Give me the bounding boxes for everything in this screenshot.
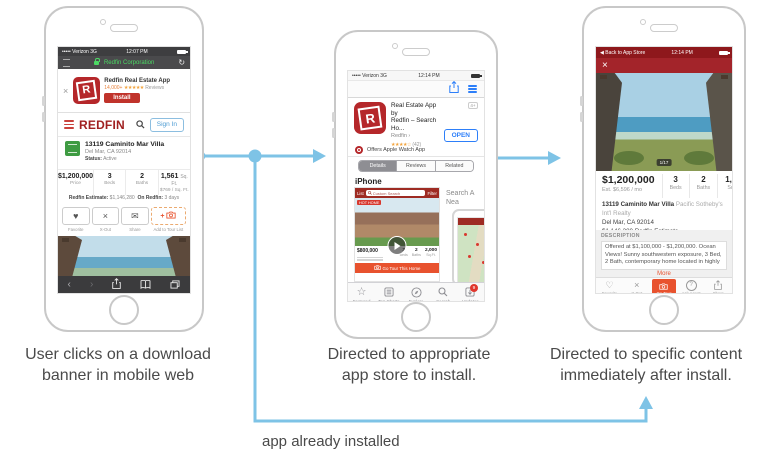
install-button[interactable]: Install bbox=[104, 93, 139, 103]
carrier-label: ••••• Verizon 3G bbox=[352, 73, 387, 79]
listing-city: Del Mar, CA 92014 bbox=[602, 218, 726, 227]
photo-right-wall bbox=[166, 236, 190, 276]
carrier-label: ••••• Verizon 3G bbox=[62, 49, 97, 55]
search-pill: Custom Search bbox=[366, 190, 426, 196]
clock: 12:14 PM bbox=[671, 50, 692, 56]
listing-stats: $1,200,000 Price 3 Beds 2 Baths 1,561 Sq… bbox=[58, 169, 190, 195]
arrow-step1-to-step2 bbox=[197, 149, 327, 163]
description-section: DESCRIPTION Offered at $1,100,000 - $1,2… bbox=[596, 230, 732, 277]
redfin-logo: REDFIN bbox=[79, 118, 125, 132]
listing-thumb-icon bbox=[65, 141, 80, 156]
chimney bbox=[62, 238, 69, 242]
camera-icon bbox=[659, 281, 668, 291]
search-icon[interactable] bbox=[136, 116, 145, 134]
tabs-icon[interactable] bbox=[170, 276, 180, 294]
caption-step-2: Directed to appropriate app store to ins… bbox=[293, 344, 525, 386]
tab-search[interactable]: Search bbox=[430, 283, 457, 302]
xout-button[interactable]: × bbox=[92, 207, 120, 225]
battery-icon bbox=[177, 50, 186, 54]
listing-summary: 13119 Caminito Mar Villa Del Mar, CA 920… bbox=[58, 137, 190, 169]
redfin-app-icon: R bbox=[73, 77, 100, 104]
camera-icon bbox=[374, 265, 381, 271]
share-icon bbox=[714, 280, 722, 290]
stat-beds: 3 Beds bbox=[94, 170, 126, 195]
already-installed-label: app already installed bbox=[262, 433, 400, 450]
front-camera bbox=[640, 19, 646, 25]
favorite-button[interactable]: ♥ bbox=[62, 207, 90, 225]
photo-left-wall bbox=[58, 236, 82, 276]
heart-icon: ♥ bbox=[73, 211, 78, 221]
description-heading: DESCRIPTION bbox=[601, 233, 727, 239]
back-to-app-store-link[interactable]: ◀ Back to App Store bbox=[600, 50, 645, 56]
updates-badge: 9 bbox=[470, 284, 478, 292]
sign-in-button[interactable]: Sign In bbox=[150, 118, 184, 132]
share-button[interactable]: ✉ bbox=[121, 207, 149, 225]
photo-counter-badge: 1/17 bbox=[657, 159, 672, 166]
chimney bbox=[600, 75, 607, 79]
star-rating-icon: ★★★★★ bbox=[124, 85, 144, 91]
bookmarks-icon[interactable] bbox=[140, 276, 151, 294]
screenshot-gallery: List Custom Search Filter HOT HOME $8 bbox=[348, 187, 484, 282]
app-title: Real Estate App by Redfin – Search Ho... bbox=[391, 102, 439, 132]
volume-button bbox=[42, 112, 45, 122]
app-card: R Real Estate App by Redfin – Search Ho.… bbox=[348, 98, 484, 144]
estimate-line: Redfin Estimate: $1,146,280 On Redfin: 3… bbox=[58, 195, 190, 204]
app-store-nav bbox=[348, 81, 484, 98]
more-link[interactable]: More bbox=[601, 271, 727, 277]
listing-city: Del Mar, CA 92014 bbox=[85, 149, 164, 155]
watch-app-row: Offers Apple Watch App bbox=[348, 144, 484, 157]
tab-top-charts[interactable]: Top Charts bbox=[375, 283, 402, 302]
screenshot-1: List Custom Search Filter HOT HOME $8 bbox=[354, 187, 440, 282]
chimney bbox=[179, 238, 186, 242]
listing-address: 13119 Caminito Mar Villa bbox=[85, 141, 164, 148]
volume-button bbox=[332, 112, 335, 122]
watch-app-icon bbox=[355, 146, 363, 154]
close-icon[interactable]: × bbox=[62, 86, 69, 96]
volume-button bbox=[580, 96, 583, 106]
ask-agent-button[interactable]: ? Ask Agent bbox=[679, 280, 703, 294]
age-rating-badge: 4+ bbox=[468, 102, 478, 109]
status-bar: ••••• Verizon 3G 12:14 PM bbox=[348, 71, 484, 81]
listing-address: 13119 Caminito Mar Villa bbox=[602, 201, 674, 208]
site-title: Redfin Corporation bbox=[104, 60, 154, 66]
front-camera bbox=[392, 43, 398, 49]
open-button[interactable]: OPEN bbox=[444, 129, 478, 142]
greenery bbox=[684, 151, 714, 165]
explore-compass-icon bbox=[411, 286, 422, 298]
description-text: Offered at $1,100,000 - $1,200,000. Ocea… bbox=[601, 241, 727, 270]
battery-icon bbox=[471, 74, 480, 78]
tab-related[interactable]: Related bbox=[435, 161, 473, 171]
menu-icon[interactable] bbox=[64, 120, 74, 128]
x-icon: × bbox=[634, 280, 639, 290]
home-button[interactable] bbox=[109, 295, 139, 325]
app-store-screen: ••••• Verizon 3G 12:14 PM R Real Estate … bbox=[347, 70, 485, 302]
listing-photo[interactable]: 1/17 bbox=[596, 73, 732, 171]
clock: 12:14 PM bbox=[418, 73, 439, 79]
chimney bbox=[721, 75, 728, 79]
add-to-tour-button[interactable]: + bbox=[151, 207, 186, 225]
price-row: $1,200,000 Est. $6,596 / mo 3 Beds 2 Bat… bbox=[596, 171, 732, 198]
close-icon[interactable]: × bbox=[602, 61, 608, 71]
refresh-icon[interactable]: ↻ bbox=[178, 59, 185, 67]
app-developer[interactable]: Redfin › bbox=[391, 133, 439, 139]
stat-sqft: 1,561 Sq. Ft. $769 / Sq. Ft. bbox=[159, 170, 190, 195]
go-tour-button[interactable]: Go Tour bbox=[652, 279, 676, 294]
screenshot-search-header: List Custom Search Filter bbox=[355, 188, 439, 198]
volume-button bbox=[332, 128, 335, 138]
app-rating: 14,000+ ★★★★★ Reviews bbox=[104, 85, 170, 91]
screenshot-2: Search A Nea bbox=[446, 187, 484, 282]
listing-status: Status: Active bbox=[85, 156, 164, 162]
hot-home-badge: HOT HOME bbox=[357, 200, 381, 205]
address-block: 13119 Caminito Mar Villa Pacific Sotheby… bbox=[596, 198, 732, 230]
flow-diagram: ••••• Verizon 3G 12:07 PM Redfin Corpora… bbox=[0, 0, 768, 462]
map-graphic bbox=[458, 225, 484, 282]
listing-price: $1,200,000 bbox=[602, 174, 655, 186]
front-camera bbox=[100, 19, 106, 25]
status-bar: ◀ Back to App Store 12:14 PM bbox=[596, 47, 732, 58]
mobile-web-screen: ••••• Verizon 3G 12:07 PM Redfin Corpora… bbox=[57, 46, 191, 294]
app-toolbar: ♡ Favorite × X-Out Go Tour ? Ask Agent bbox=[596, 277, 732, 294]
envelope-icon: ✉ bbox=[131, 211, 139, 222]
stat-baths: 2 Baths bbox=[126, 170, 158, 195]
earpiece-speaker bbox=[650, 24, 678, 32]
reader-icon[interactable] bbox=[63, 59, 70, 67]
stat-beds: 3 Beds bbox=[662, 174, 682, 198]
app-store-tab-bar: ☆ Featured Top Charts Explore bbox=[348, 282, 484, 302]
x-icon: × bbox=[103, 211, 108, 221]
listing-photo bbox=[58, 236, 190, 276]
clock: 12:07 PM bbox=[126, 49, 147, 55]
volume-button bbox=[580, 112, 583, 122]
stat-sqft: 1,561 Sq. Ft. bbox=[717, 174, 733, 198]
caption-step-1: User clicks on a download banner in mobi… bbox=[2, 344, 234, 386]
tab-updates[interactable]: 9 Updates bbox=[457, 283, 484, 302]
earpiece-speaker bbox=[110, 24, 138, 32]
battery-icon bbox=[719, 51, 728, 55]
stat-price: $1,200,000 Price bbox=[58, 170, 94, 195]
favorite-button[interactable]: ♡ Favorite bbox=[598, 280, 622, 294]
volume-button bbox=[42, 96, 45, 106]
play-button bbox=[388, 236, 407, 255]
app-nav-bar: × bbox=[596, 58, 732, 73]
app-name: Redfin Real Estate App bbox=[104, 78, 170, 84]
wishlist-icon[interactable] bbox=[468, 85, 477, 93]
top-charts-icon bbox=[384, 286, 394, 298]
camera-icon bbox=[166, 211, 176, 221]
phone-app-store: ••••• Verizon 3G 12:14 PM R Real Estate … bbox=[334, 30, 498, 339]
earpiece-speaker bbox=[402, 48, 430, 56]
stat-baths: 2 Baths bbox=[689, 174, 711, 198]
monthly-estimate: Est. $6,596 / mo bbox=[602, 187, 655, 193]
redfin-app-icon: R bbox=[354, 102, 386, 134]
forward-icon[interactable]: › bbox=[90, 280, 93, 290]
address-placeholder-lines bbox=[357, 256, 383, 261]
tab-featured[interactable]: ☆ Featured bbox=[348, 283, 375, 302]
status-bar: ••••• Verizon 3G 12:07 PM bbox=[58, 47, 190, 56]
house-photo: HOT HOME bbox=[355, 198, 439, 246]
back-icon[interactable]: ‹ bbox=[68, 280, 71, 290]
caption-step-3: Directed to specific content immediately… bbox=[530, 344, 762, 386]
share-icon[interactable] bbox=[449, 80, 459, 98]
redfin-app-screen: ◀ Back to App Store 12:14 PM × 1/17 $1,2… bbox=[595, 46, 733, 294]
site-header: REDFIN Sign In bbox=[58, 113, 190, 137]
segmented-control: Details Reviews Related bbox=[348, 157, 484, 175]
share-icon[interactable] bbox=[112, 276, 121, 294]
phone-redfin-app: ◀ Back to App Store 12:14 PM × 1/17 $1,2… bbox=[582, 6, 746, 332]
safari-address-bar[interactable]: Redfin Corporation ↻ bbox=[58, 56, 190, 69]
go-tour-cta: Go Tour This Home bbox=[355, 263, 439, 273]
greenery bbox=[614, 151, 644, 165]
share-button[interactable]: Share bbox=[706, 280, 730, 294]
xout-button[interactable]: × X-Out bbox=[625, 280, 649, 294]
mini-phone-graphic bbox=[452, 209, 484, 282]
home-button[interactable] bbox=[649, 295, 679, 325]
featured-star-icon: ☆ bbox=[357, 286, 367, 298]
lock-icon bbox=[94, 61, 99, 65]
listing-actions: ♥ Favorite × X-Out ✉ Share + bbox=[58, 204, 190, 236]
section-heading: iPhone bbox=[348, 175, 484, 187]
tab-details[interactable]: Details bbox=[359, 161, 396, 171]
safari-toolbar: ‹ › bbox=[58, 276, 190, 293]
app-download-banner: × R Redfin Real Estate App 14,000+ ★★★★★… bbox=[58, 69, 190, 113]
tab-explore[interactable]: Explore bbox=[402, 283, 429, 302]
question-bubble-icon: ? bbox=[686, 280, 697, 290]
tab-reviews[interactable]: Reviews bbox=[396, 161, 434, 171]
heart-icon: ♡ bbox=[606, 280, 614, 290]
home-button[interactable] bbox=[401, 302, 431, 332]
phone-mobile-web: ••••• Verizon 3G 12:07 PM Redfin Corpora… bbox=[44, 6, 204, 332]
search-icon bbox=[438, 286, 448, 298]
